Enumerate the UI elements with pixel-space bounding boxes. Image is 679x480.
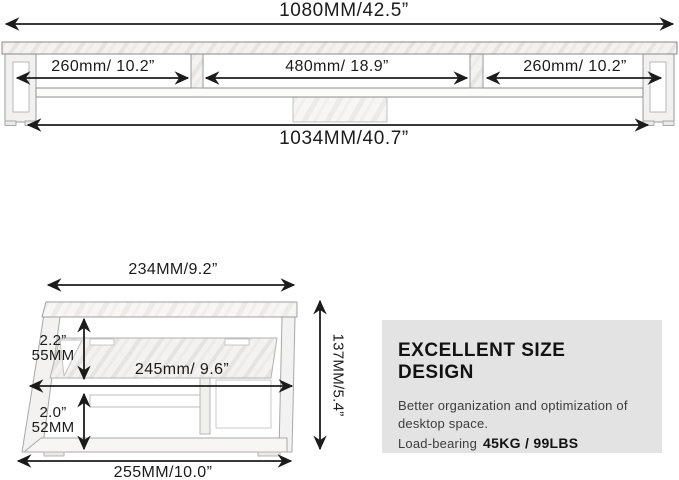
load-bearing-row: Load-bearing45KG / 99LBS xyxy=(398,434,646,453)
dim-lower-clearance-mm: 52MM xyxy=(26,420,80,437)
load-bearing-value: 45KG / 99LBS xyxy=(483,435,578,451)
front-view-drawing xyxy=(2,42,677,126)
dim-base-depth: 255MM/10.0” xyxy=(114,464,213,480)
dim-inner-width: 1034MM/40.7” xyxy=(279,129,409,150)
size-design-card: EXCELLENT SIZE DESIGN Better organizatio… xyxy=(382,320,662,453)
dim-overall-height: 137MM/5.4” xyxy=(329,333,346,416)
card-description-line1: Better organization and optimization of xyxy=(398,398,628,413)
dim-right-section: 260mm/ 10.2” xyxy=(523,58,627,76)
load-bearing-label: Load-bearing xyxy=(398,436,477,451)
dim-middle-section: 480mm/ 18.9” xyxy=(285,58,389,76)
product-dimension-diagram: 1080MM/42.5” 260mm/ 10.2” 480mm/ 18.9” 2… xyxy=(0,0,679,480)
card-title: EXCELLENT SIZE DESIGN xyxy=(398,340,646,384)
dim-top-depth: 234MM/9.2” xyxy=(128,261,217,279)
card-description-line2: desktop space. xyxy=(398,416,488,431)
dim-middle-depth: 245mm/ 9.6” xyxy=(135,361,229,379)
dim-upper-clearance-mm: 55MM xyxy=(26,348,80,365)
dim-overall-width: 1080MM/42.5” xyxy=(279,1,409,22)
dim-left-section: 260mm/ 10.2” xyxy=(51,58,155,76)
card-description: Better organization and optimization of … xyxy=(398,397,646,453)
